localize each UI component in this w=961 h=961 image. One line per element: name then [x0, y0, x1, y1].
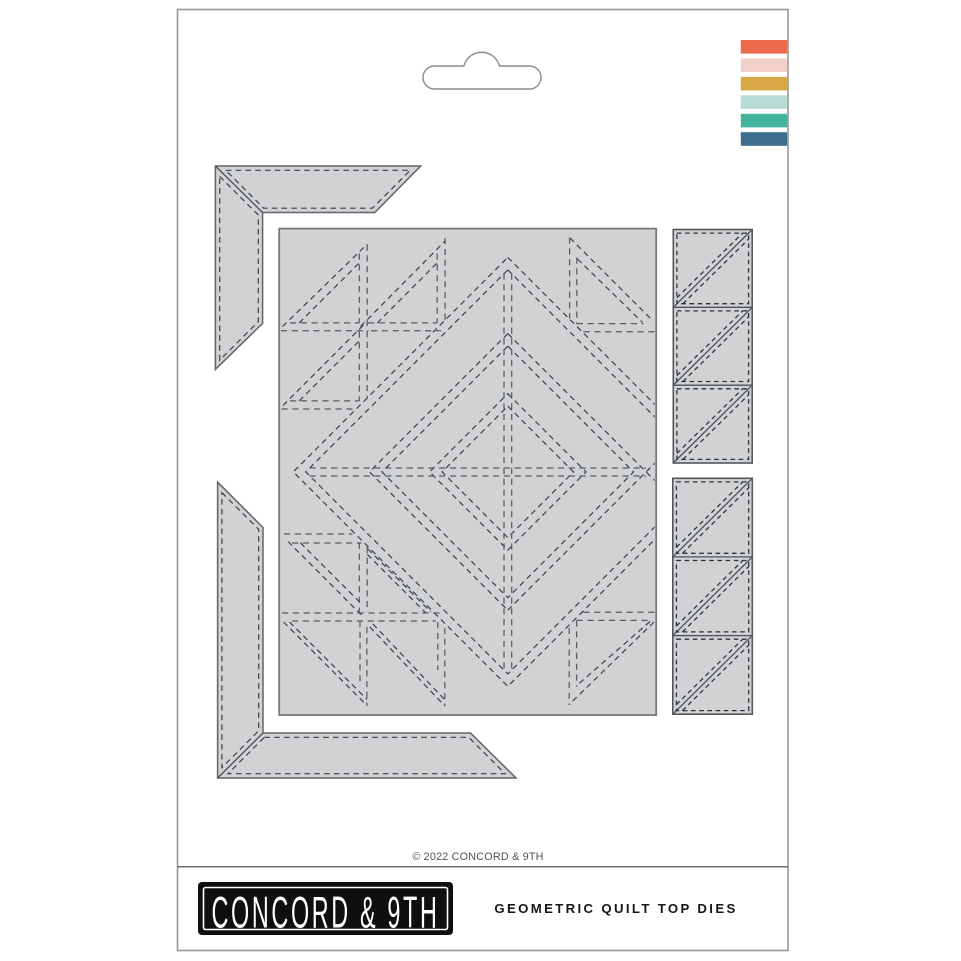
svg-text:CONCORD & 9TH: CONCORD & 9TH	[212, 888, 440, 937]
svg-text:GEOMETRIC QUILT TOP DIES: GEOMETRIC QUILT TOP DIES	[494, 901, 737, 916]
svg-text:© 2022 CONCORD & 9TH: © 2022 CONCORD & 9TH	[412, 851, 543, 863]
